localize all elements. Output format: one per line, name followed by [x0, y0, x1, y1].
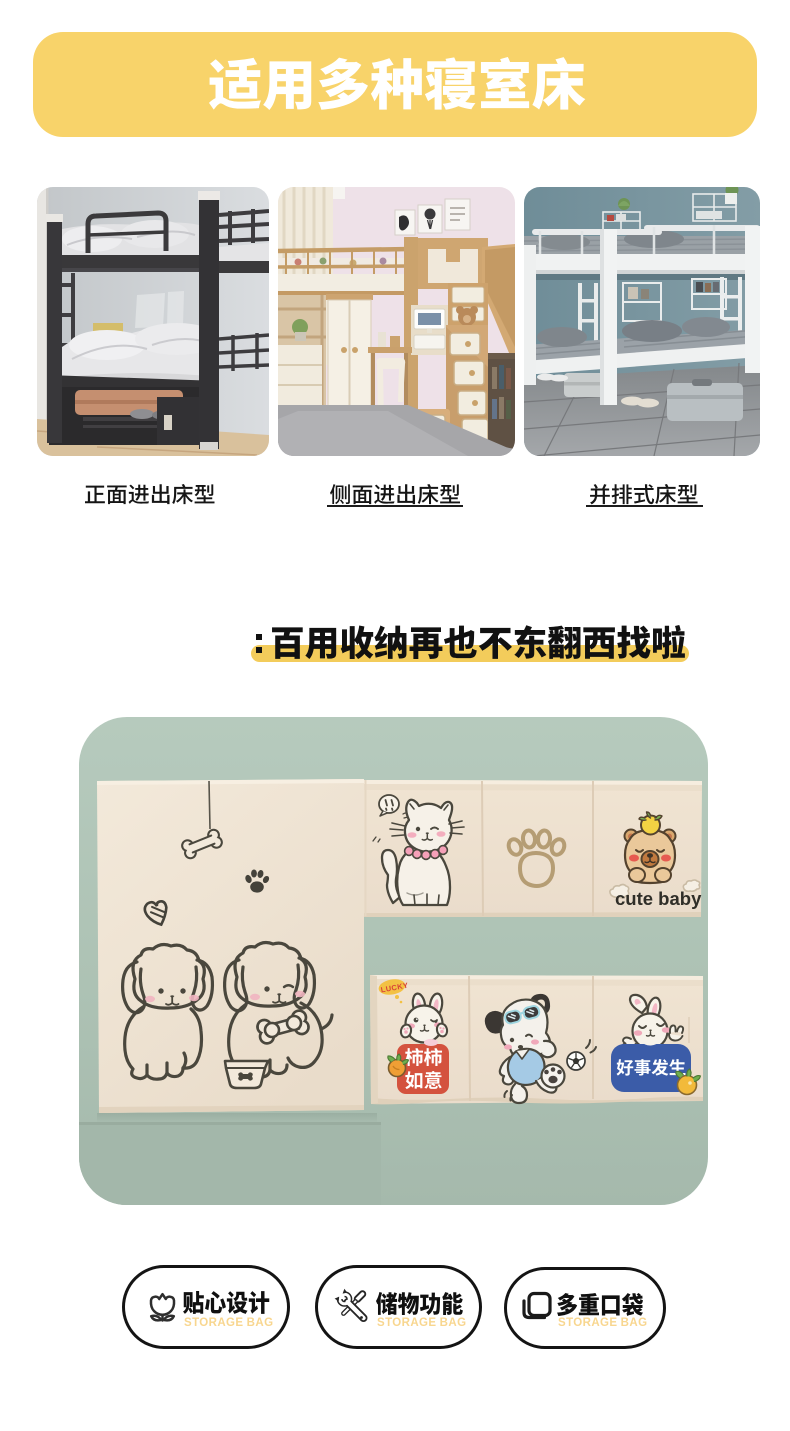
svg-text:cute baby: cute baby: [615, 888, 702, 909]
